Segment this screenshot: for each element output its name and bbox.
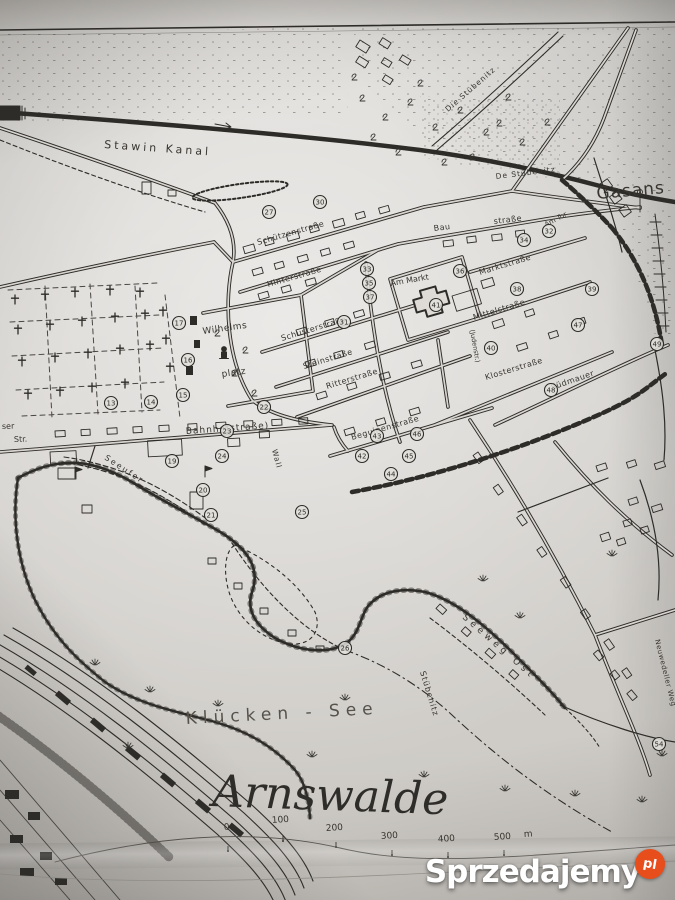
poi-number: 32 bbox=[545, 227, 554, 235]
poi-number: 22 bbox=[260, 403, 269, 411]
poi-number: 39 bbox=[588, 285, 597, 293]
poi-number: 41 bbox=[432, 301, 441, 309]
poi-marker: 36 bbox=[454, 265, 467, 278]
poi-marker: 49 bbox=[651, 338, 664, 351]
poi-marker: 38 bbox=[511, 283, 524, 296]
scale-tick-label: 500 bbox=[494, 832, 512, 843]
poi-number: 31 bbox=[340, 318, 349, 326]
poi-number: 49 bbox=[653, 340, 662, 348]
poi-number: 23 bbox=[223, 427, 232, 435]
poi-marker: 54 bbox=[653, 738, 666, 751]
poi-marker: 17 bbox=[173, 317, 186, 330]
poi-number: 14 bbox=[147, 398, 156, 406]
poi-number: 27 bbox=[265, 208, 274, 216]
poi-marker: 21 bbox=[205, 509, 218, 522]
poi-number: 37 bbox=[366, 293, 375, 301]
street-label: Wilhelms bbox=[202, 321, 248, 337]
scale-tick-label: 200 bbox=[326, 823, 344, 834]
street-label: (Judenstr.) bbox=[468, 329, 482, 363]
railway bbox=[0, 628, 313, 900]
poi-number: 48 bbox=[547, 386, 556, 394]
poi-marker: 46 bbox=[411, 428, 424, 441]
street-label: Schützenstraße bbox=[256, 219, 325, 247]
poi-marker: 37 bbox=[364, 291, 377, 304]
poi-marker: 20 bbox=[197, 484, 210, 497]
poi-marker: 19 bbox=[166, 455, 179, 468]
street-label: ser bbox=[2, 422, 15, 431]
poi-number: 40 bbox=[487, 344, 496, 352]
poi-marker: 41 bbox=[430, 299, 443, 312]
watermark-brand: Sprzedajemy bbox=[425, 857, 640, 888]
poi-number: 44 bbox=[387, 470, 396, 478]
map-svg: Stawin KanalDie StübenitzDe StübenitzGas… bbox=[0, 0, 675, 900]
poi-number: 35 bbox=[365, 279, 374, 287]
poi-marker: 13 bbox=[105, 397, 118, 410]
poi-marker: 44 bbox=[385, 468, 398, 481]
poi-number: 42 bbox=[358, 452, 367, 460]
scale-tick-label: 300 bbox=[381, 831, 399, 842]
poi-marker: 39 bbox=[586, 283, 599, 296]
poi-number: 45 bbox=[405, 452, 414, 460]
tree-allee bbox=[191, 177, 288, 204]
streets-minor bbox=[88, 158, 675, 742]
poi-number: 30 bbox=[316, 198, 325, 206]
scale-tick-dot bbox=[227, 850, 229, 852]
poi-number: 21 bbox=[207, 511, 216, 519]
street-label: Stawin Kanal bbox=[104, 138, 212, 158]
street-label: Mittelstraße bbox=[472, 298, 526, 322]
poi-marker: 26 bbox=[339, 642, 352, 655]
poi-marker: 23 bbox=[221, 425, 234, 438]
poi-number: 33 bbox=[363, 265, 372, 273]
poi-number: 17 bbox=[175, 319, 184, 327]
poi-marker: 42 bbox=[356, 450, 369, 463]
street-label: Beguinenstraße bbox=[350, 414, 420, 442]
street-label: Bau bbox=[433, 222, 451, 233]
street-label: Am Markt bbox=[390, 272, 430, 288]
poi-marker: 35 bbox=[363, 277, 376, 290]
monument-icon bbox=[220, 347, 229, 359]
scale-tick-label: 400 bbox=[438, 834, 456, 845]
scale-unit: m bbox=[524, 829, 533, 840]
poi-marker: 34 bbox=[518, 234, 531, 247]
poi-number: 16 bbox=[184, 356, 193, 364]
flag-icon bbox=[205, 466, 212, 477]
poi-number: 46 bbox=[413, 430, 422, 438]
poi-number: 34 bbox=[520, 236, 529, 244]
street-label: Marktstraße bbox=[478, 253, 532, 277]
poi-marker: 25 bbox=[296, 506, 309, 519]
scale-tick-label: 0 bbox=[224, 823, 231, 833]
poi-number: 43 bbox=[373, 432, 382, 440]
map-title: Arnswalde bbox=[208, 766, 450, 825]
poi-marker: 45 bbox=[403, 450, 416, 463]
scale-tick-dot bbox=[335, 846, 337, 848]
watermark: Sprzedajemy pl bbox=[425, 857, 665, 888]
poi-number: 54 bbox=[655, 740, 664, 748]
scale-tick-dot bbox=[282, 840, 284, 842]
street-label: Wall bbox=[270, 448, 284, 469]
scale-tick-dot bbox=[391, 854, 393, 856]
poi-marker: 31 bbox=[338, 316, 351, 329]
poi-number: 24 bbox=[218, 452, 227, 460]
poi-marker: 15 bbox=[177, 389, 190, 402]
poi-number: 36 bbox=[456, 267, 465, 275]
poi-number: 20 bbox=[199, 486, 208, 494]
poi-number: 26 bbox=[341, 644, 350, 652]
poi-number: 38 bbox=[513, 285, 522, 293]
street-label: Stübenitz bbox=[418, 670, 440, 718]
street-label: Klosterstraße bbox=[484, 356, 544, 382]
lake-shoreline bbox=[15, 463, 565, 818]
poi-marker: 48 bbox=[545, 384, 558, 397]
poi-number: 13 bbox=[107, 399, 116, 407]
poi-number: 25 bbox=[298, 508, 307, 516]
street-label: Str. bbox=[14, 435, 28, 444]
poi-marker: 33 bbox=[361, 263, 374, 276]
map-photo: Stawin KanalDie StübenitzDe StübenitzGas… bbox=[0, 0, 675, 900]
poi-marker: 27 bbox=[263, 206, 276, 219]
poi-marker: 43 bbox=[371, 430, 384, 443]
poi-marker: 40 bbox=[485, 342, 498, 355]
poi-marker: 16 bbox=[182, 354, 195, 367]
poi-number: 19 bbox=[168, 457, 177, 465]
street-label: platz bbox=[221, 367, 247, 380]
poi-number: 47 bbox=[574, 321, 583, 329]
poi-number: 15 bbox=[179, 391, 188, 399]
grass-tufts bbox=[90, 550, 667, 802]
poi-marker: 24 bbox=[216, 450, 229, 463]
poi-marker: 47 bbox=[572, 319, 585, 332]
lake-label: Klücken - See bbox=[185, 699, 379, 729]
poi-marker: 22 bbox=[258, 401, 271, 414]
poi-marker: 30 bbox=[314, 196, 327, 209]
street-label: Seeweg Ost bbox=[460, 613, 537, 682]
poi-marker: 32 bbox=[543, 225, 556, 238]
street-label: Neuwedeller Weg bbox=[653, 639, 675, 708]
poi-marker: 14 bbox=[145, 396, 158, 409]
